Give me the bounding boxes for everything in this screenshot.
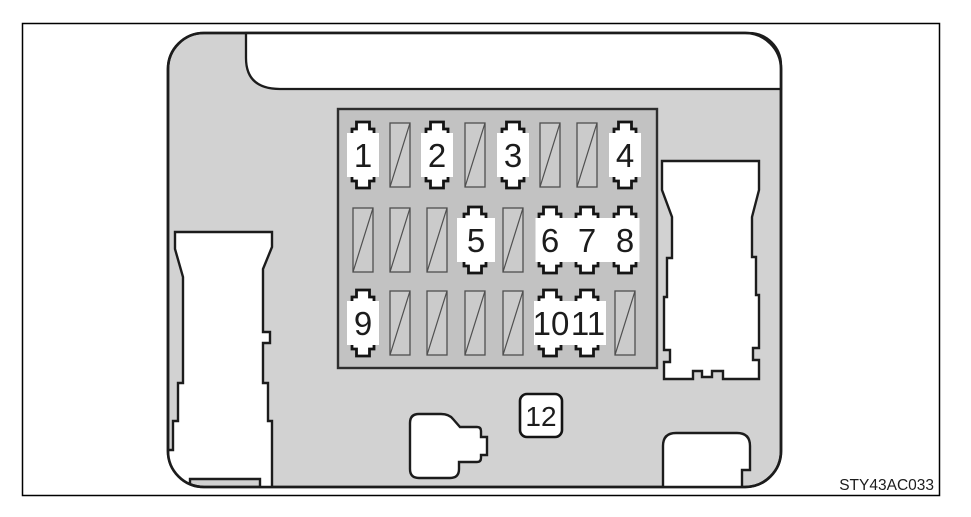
- fuse-8-label: 8: [616, 222, 634, 259]
- unlabeled-fuse: [390, 291, 410, 355]
- unlabeled-fuse: [465, 291, 485, 355]
- figure-code: STY43AC033: [839, 477, 934, 494]
- unlabeled-fuse: [390, 208, 410, 272]
- fuse-2-label: 2: [428, 137, 446, 174]
- bottom-right-cutout: [663, 433, 750, 490]
- fuse-grid: 1 2 3 4 5 6 7 8 9 10 11: [338, 109, 657, 368]
- unlabeled-fuse: [465, 123, 485, 187]
- relay-box-12: 12: [520, 394, 562, 437]
- unlabeled-fuse: [390, 123, 410, 187]
- fuse-3-label: 3: [504, 137, 522, 174]
- fuse-11-label: 11: [571, 305, 605, 342]
- left-connector-cutout: [168, 232, 272, 488]
- fuse-6-label: 6: [541, 222, 559, 259]
- top-notch-cutout: [246, 33, 781, 89]
- fuse-10-label: 10: [533, 305, 570, 342]
- fuse-box-diagram-figure: 1 2 3 4 5 6 7 8 9 10 11 12 STY43AC033: [0, 0, 971, 517]
- unlabeled-fuse: [615, 291, 635, 355]
- unlabeled-fuse: [503, 291, 523, 355]
- fuse-1-label: 1: [354, 137, 372, 174]
- fuse-4-label: 4: [616, 137, 634, 174]
- fuse-box-diagram: 1 2 3 4 5 6 7 8 9 10 11 12 STY43AC033: [0, 0, 971, 517]
- fuse-9-label: 9: [354, 305, 372, 342]
- fuse-5-label: 5: [467, 222, 485, 259]
- unlabeled-fuse: [540, 123, 560, 187]
- unlabeled-fuse: [427, 208, 447, 272]
- unlabeled-fuse: [353, 208, 373, 272]
- right-connector-cutout: [662, 161, 759, 379]
- fuse-7-label: 7: [578, 222, 596, 259]
- unlabeled-fuse: [427, 291, 447, 355]
- relay-box-label: 12: [525, 401, 556, 432]
- unlabeled-fuse: [577, 123, 597, 187]
- unlabeled-fuse: [503, 208, 523, 272]
